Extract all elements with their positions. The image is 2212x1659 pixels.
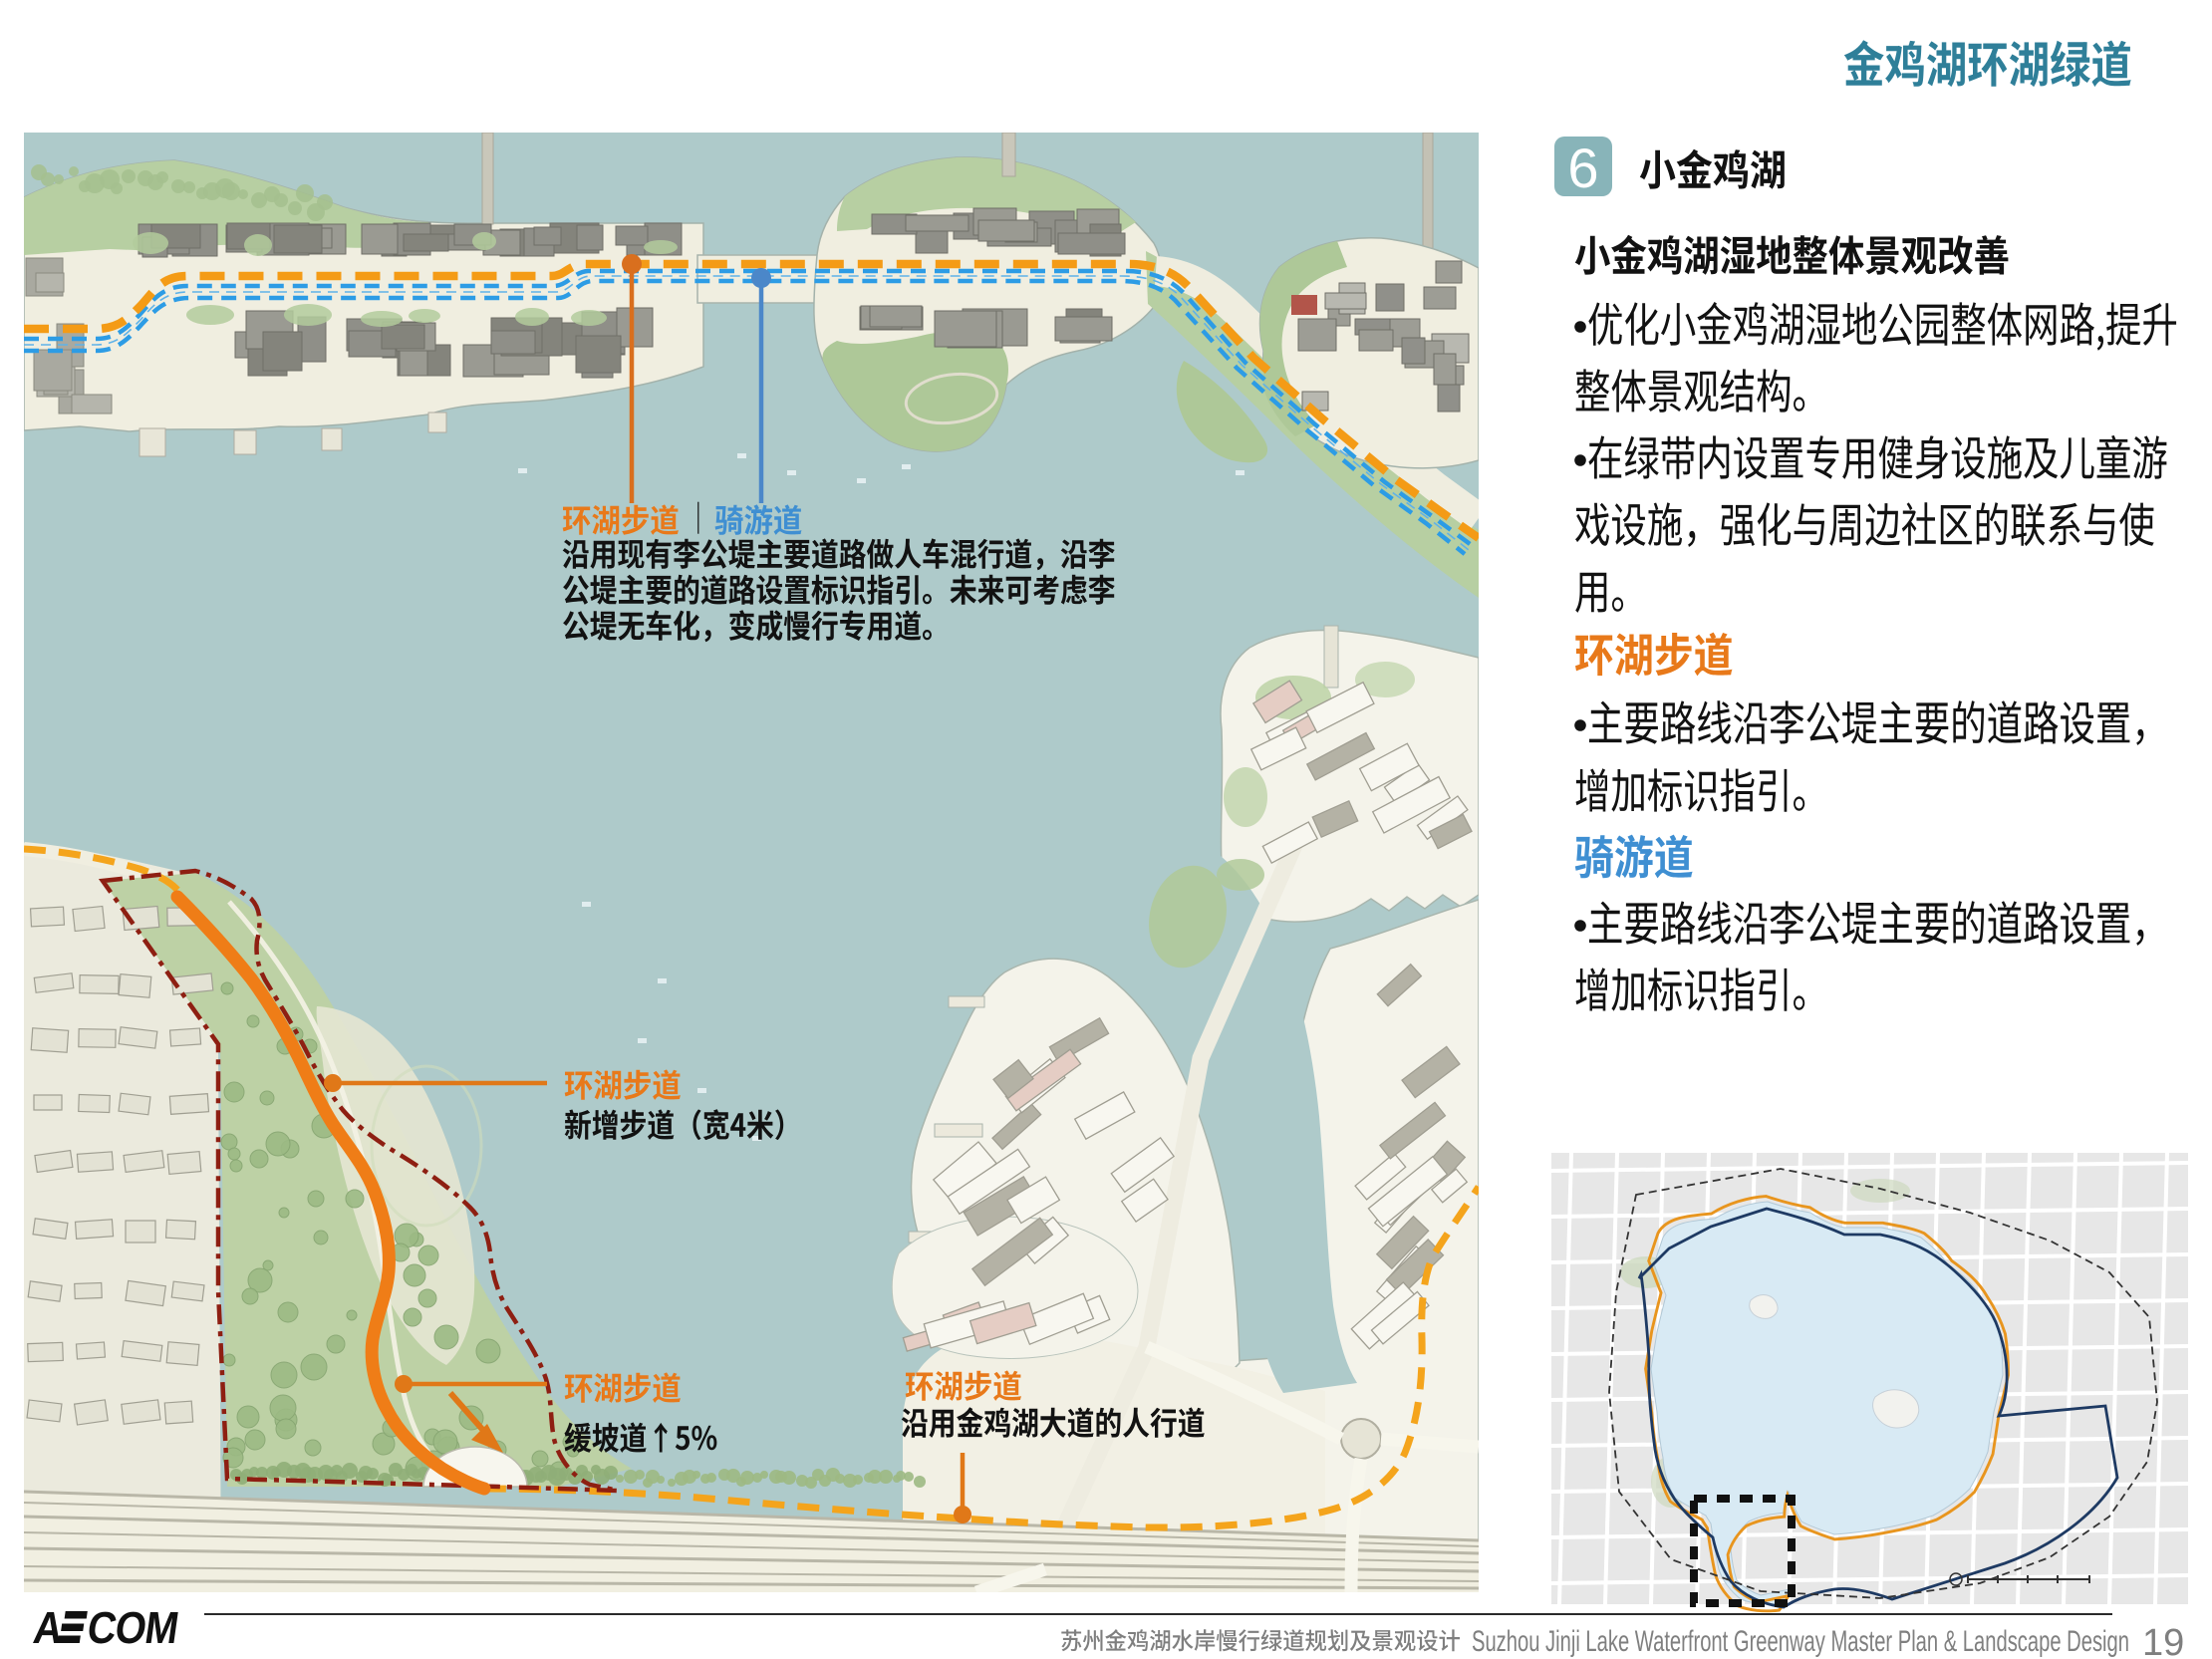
svg-text:6: 6 — [1567, 137, 1598, 199]
svg-text:19: 19 — [2142, 1622, 2184, 1659]
svg-text:COM: COM — [85, 1603, 181, 1654]
svg-text:Suzhou Jinji Lake Waterfront G: Suzhou Jinji Lake Waterfront Greenway Ma… — [1472, 1625, 2129, 1658]
